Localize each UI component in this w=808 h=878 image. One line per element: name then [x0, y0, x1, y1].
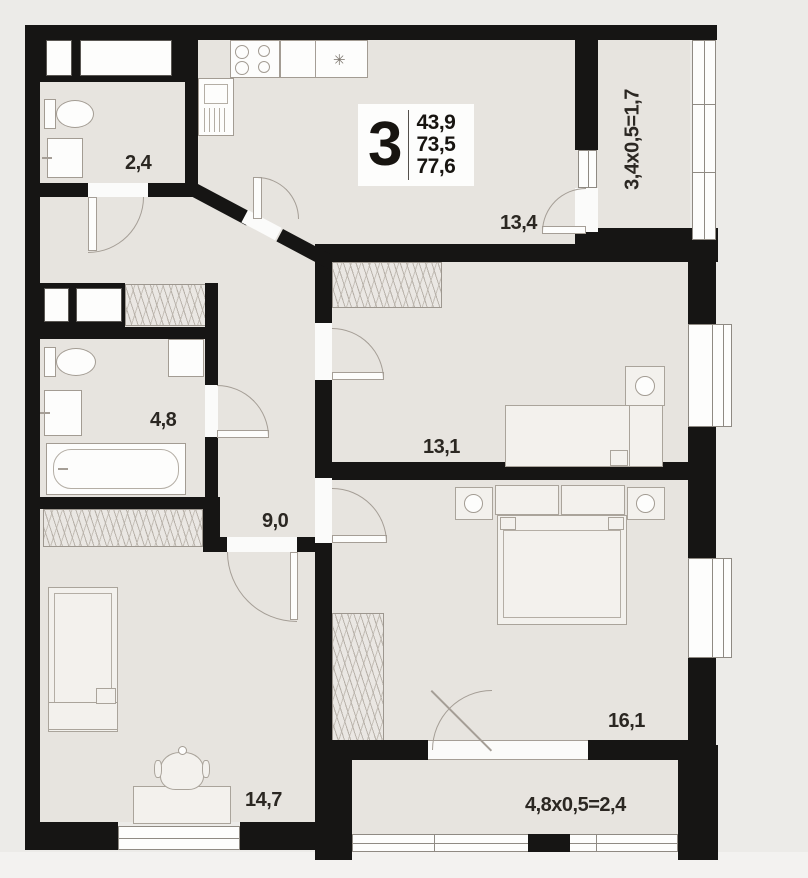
toilet-bowl [56, 100, 94, 128]
vent-shaft [80, 40, 172, 76]
room-label-bedroom2: 16,1 [608, 710, 645, 733]
wall [25, 822, 118, 850]
window-bedroom2 [688, 558, 732, 658]
nightstand-lamp [636, 494, 655, 513]
wall [40, 497, 220, 509]
stove-burner [258, 45, 270, 57]
toilet-tank [44, 99, 56, 129]
stove-burner [235, 45, 249, 59]
kitchen-counter [280, 40, 368, 78]
window-mullion [353, 843, 677, 844]
wall [575, 40, 598, 150]
bathtub-basin [53, 449, 179, 489]
wall [240, 822, 348, 850]
bed-foot [48, 702, 118, 730]
window-mullion [119, 838, 239, 839]
wall [40, 183, 88, 197]
window-mullion [723, 325, 724, 426]
wall [678, 745, 718, 860]
wall [205, 283, 218, 385]
bed-pillow [608, 517, 624, 530]
nightstand-lamp [464, 494, 483, 513]
chair-knob [178, 746, 187, 755]
bed-blanket [54, 593, 112, 703]
toilet-bowl [56, 348, 96, 376]
window-mullion [596, 835, 597, 851]
window-mullion [693, 172, 715, 173]
wall [203, 537, 227, 552]
bed-blanket [503, 530, 621, 618]
window-mullion [588, 151, 589, 187]
room-label-bedroom1: 13,1 [423, 436, 460, 459]
stove-burner [235, 61, 249, 75]
window-mullion [704, 41, 705, 239]
floor-plan: ✳ 3 43,9 73,5 77,6 2,4 4,8 9,0 13,4 13,1… [0, 0, 808, 878]
bed-headboard [561, 485, 625, 515]
window-mullion [712, 325, 713, 426]
door-gap-bedroom3 [227, 537, 297, 552]
wardrobe-bedroom1 [332, 262, 442, 308]
room-label-bathroom: 4,8 [150, 409, 176, 432]
door-gap-wc [88, 183, 148, 197]
wall [25, 25, 40, 850]
room-label-kitchen-living: 13,4 [500, 212, 537, 235]
wall [185, 40, 198, 197]
sink [47, 138, 83, 178]
wall [588, 740, 688, 760]
balcony-right-glazing [692, 40, 716, 240]
sink-tap [42, 157, 52, 159]
wall [40, 327, 218, 339]
desk [133, 786, 231, 824]
counter-divider [315, 40, 316, 78]
wall [688, 427, 716, 558]
apartment-area: 73,5 [416, 134, 455, 156]
toilet-tank [44, 347, 56, 377]
window-mullion [693, 104, 715, 105]
bed-pillow [500, 517, 516, 530]
door-gap-bedroom1 [315, 323, 332, 380]
total-area: 77,6 [416, 156, 455, 178]
wall [688, 658, 716, 748]
chair-armrest [202, 760, 210, 778]
bathtub-tap [58, 468, 68, 470]
chair-armrest [154, 760, 162, 778]
wardrobe-hall-upper [125, 284, 217, 326]
chair [160, 752, 204, 790]
room-label-wc: 2,4 [125, 152, 151, 175]
balcony-right-label: 3,4x0,5=1,7 [622, 60, 645, 220]
area-legend: 3 43,9 73,5 77,6 [358, 104, 474, 186]
area-values: 43,9 73,5 77,6 [408, 110, 455, 180]
wall [25, 25, 717, 40]
room-label-hallway: 9,0 [262, 510, 288, 533]
wall [688, 240, 716, 324]
window-mullion [712, 559, 713, 657]
living-area: 43,9 [416, 112, 455, 134]
window-mullion [434, 835, 435, 851]
balcony-bottom-glazing [352, 834, 678, 852]
wardrobe-bedroom2 [332, 613, 384, 743]
window-bedroom1 [688, 324, 732, 427]
window-bedroom3 [118, 826, 240, 850]
bed-footboard [629, 405, 663, 467]
sink-tap [40, 412, 50, 414]
washing-machine [168, 339, 204, 377]
kitchen-unit-detail [204, 84, 228, 104]
wall [148, 183, 198, 197]
wardrobe-below-bath [43, 509, 203, 547]
vent-shaft [76, 288, 122, 322]
balcony-bottom-label: 4,8x0,5=2,4 [525, 794, 626, 817]
door-gap-bedroom2 [315, 478, 332, 543]
vent-shaft [44, 288, 69, 322]
window-kitchen-balcony [578, 150, 597, 188]
wall [315, 543, 332, 765]
stove-burner [258, 61, 270, 73]
bed-pillow [610, 450, 628, 466]
rooms-count: 3 [358, 114, 408, 176]
bed-pillow [96, 688, 116, 704]
wall [528, 834, 570, 852]
nightstand-lamp [635, 376, 655, 396]
room-label-bedroom3: 14,7 [245, 789, 282, 812]
vent-shaft [46, 40, 72, 76]
kitchen-sink-icon: ✳ [333, 51, 346, 69]
bed-headboard [495, 485, 559, 515]
kitchen-unit-grill [204, 108, 228, 132]
window-mullion [723, 559, 724, 657]
